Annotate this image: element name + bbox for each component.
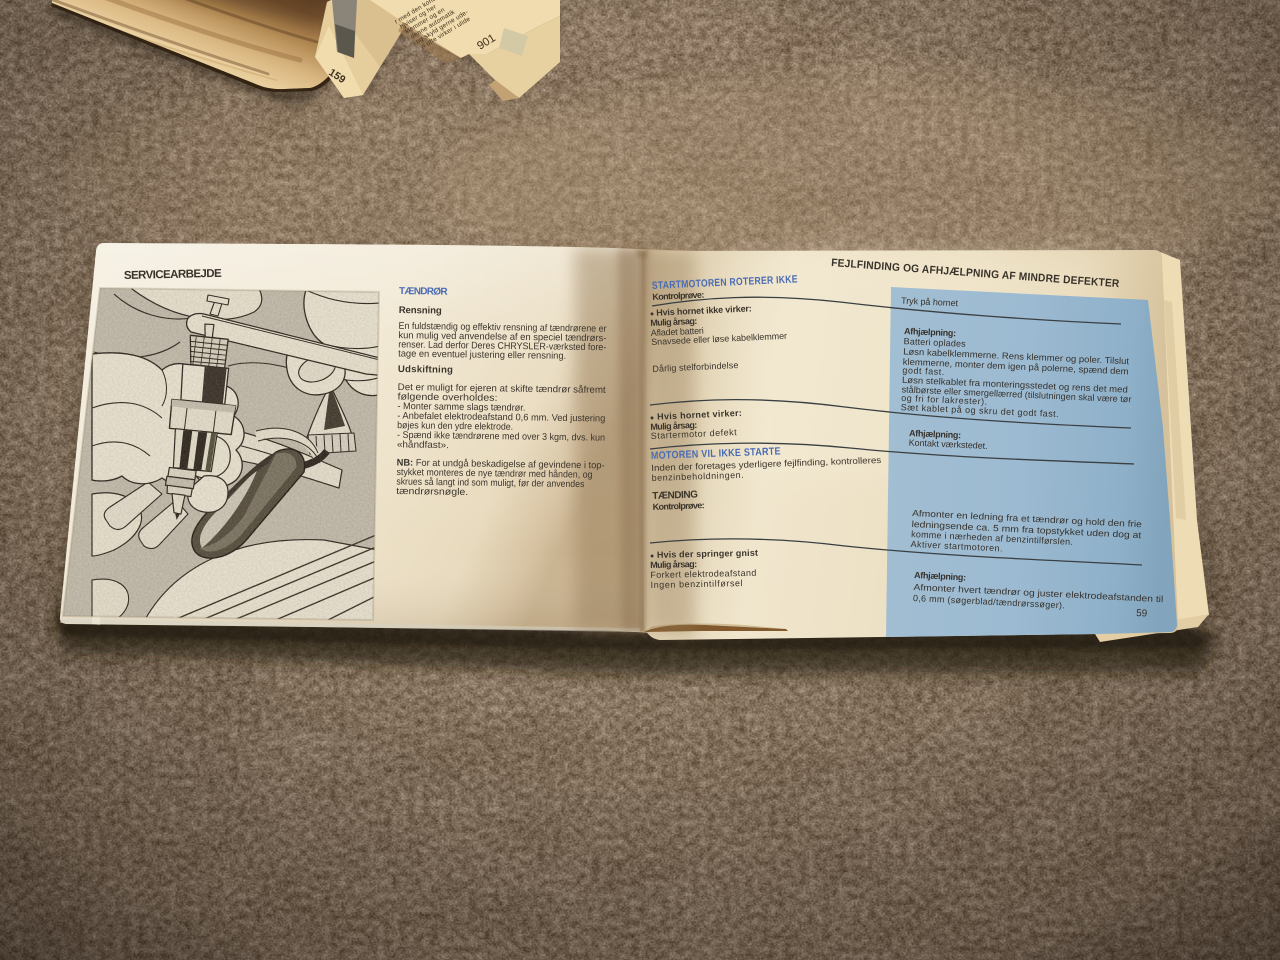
svg-text:tændrørsnøgle.: tændrørsnøgle. (396, 486, 468, 498)
svg-text:Kontrolprøve:: Kontrolprøve: (653, 500, 705, 512)
svg-text:Rensning: Rensning (399, 305, 442, 317)
svg-text:«håndfast».: «håndfast». (397, 439, 449, 451)
svg-text:SERVICEARBEJDE: SERVICEARBEJDE (124, 268, 222, 282)
svg-text:Ingen benzintilførsel: Ingen benzintilførsel (650, 578, 742, 590)
svg-text:tage en eventuel justering ell: tage en eventuel justering eller rensnin… (398, 348, 566, 361)
svg-text:Udskiftning: Udskiftning (398, 364, 453, 376)
svg-text:TÆNDRØR: TÆNDRØR (399, 286, 449, 298)
svg-text:59: 59 (1136, 608, 1148, 620)
